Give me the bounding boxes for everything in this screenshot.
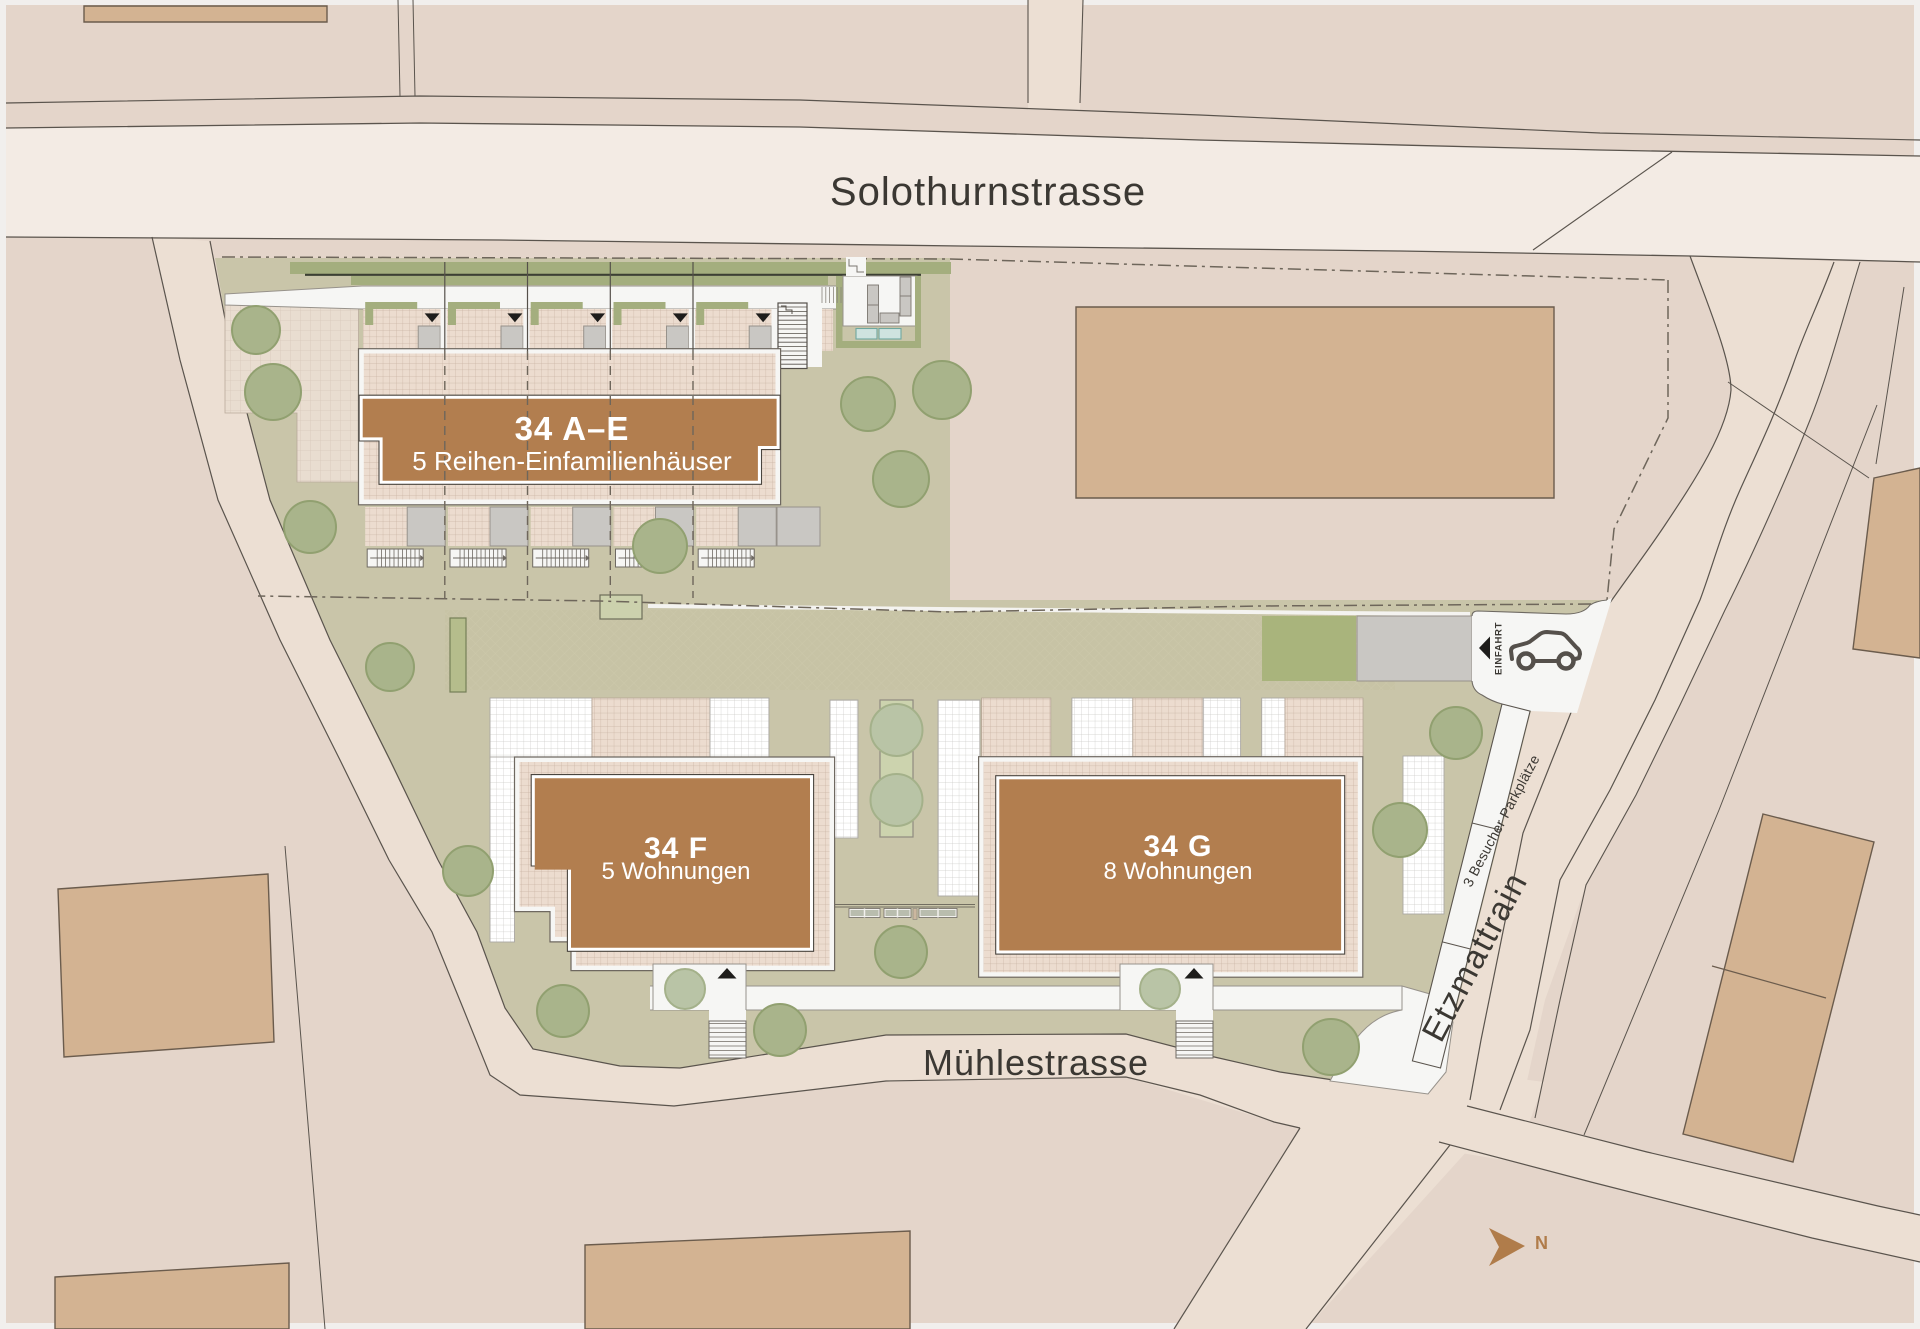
svg-text:EINFAHRT: EINFAHRT [1494,622,1505,675]
svg-text:8 Wohnungen: 8 Wohnungen [1103,858,1252,885]
svg-text:Solothurnstrasse: Solothurnstrasse [830,170,1146,214]
svg-text:34 A–E: 34 A–E [515,410,630,447]
svg-text:5 Reihen-Einfamilienhäuser: 5 Reihen-Einfamilienhäuser [412,446,732,476]
svg-text:5 Wohnungen: 5 Wohnungen [601,858,750,885]
svg-text:N: N [1535,1233,1548,1253]
svg-text:Mühlestrasse: Mühlestrasse [923,1042,1149,1083]
